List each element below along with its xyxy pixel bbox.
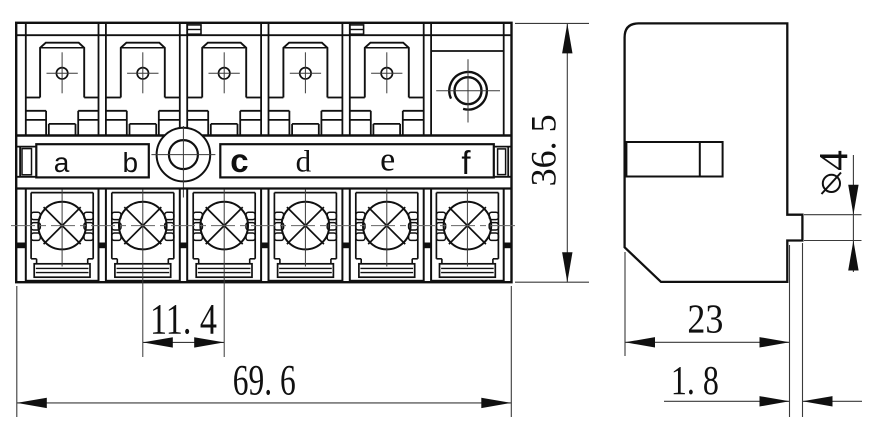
svg-text:d: d bbox=[296, 144, 312, 179]
svg-text:b: b bbox=[123, 147, 139, 178]
svg-text:a: a bbox=[54, 147, 70, 178]
svg-text:1. 8: 1. 8 bbox=[671, 357, 719, 403]
svg-text:69. 6: 69. 6 bbox=[233, 358, 296, 405]
svg-text:e: e bbox=[380, 142, 395, 179]
svg-text:11. 4: 11. 4 bbox=[150, 297, 217, 344]
svg-text:23: 23 bbox=[687, 295, 723, 341]
svg-text:c: c bbox=[230, 142, 248, 179]
svg-text:f: f bbox=[461, 144, 471, 181]
svg-text:36. 5: 36. 5 bbox=[523, 114, 563, 186]
svg-text:4: 4 bbox=[810, 150, 856, 171]
